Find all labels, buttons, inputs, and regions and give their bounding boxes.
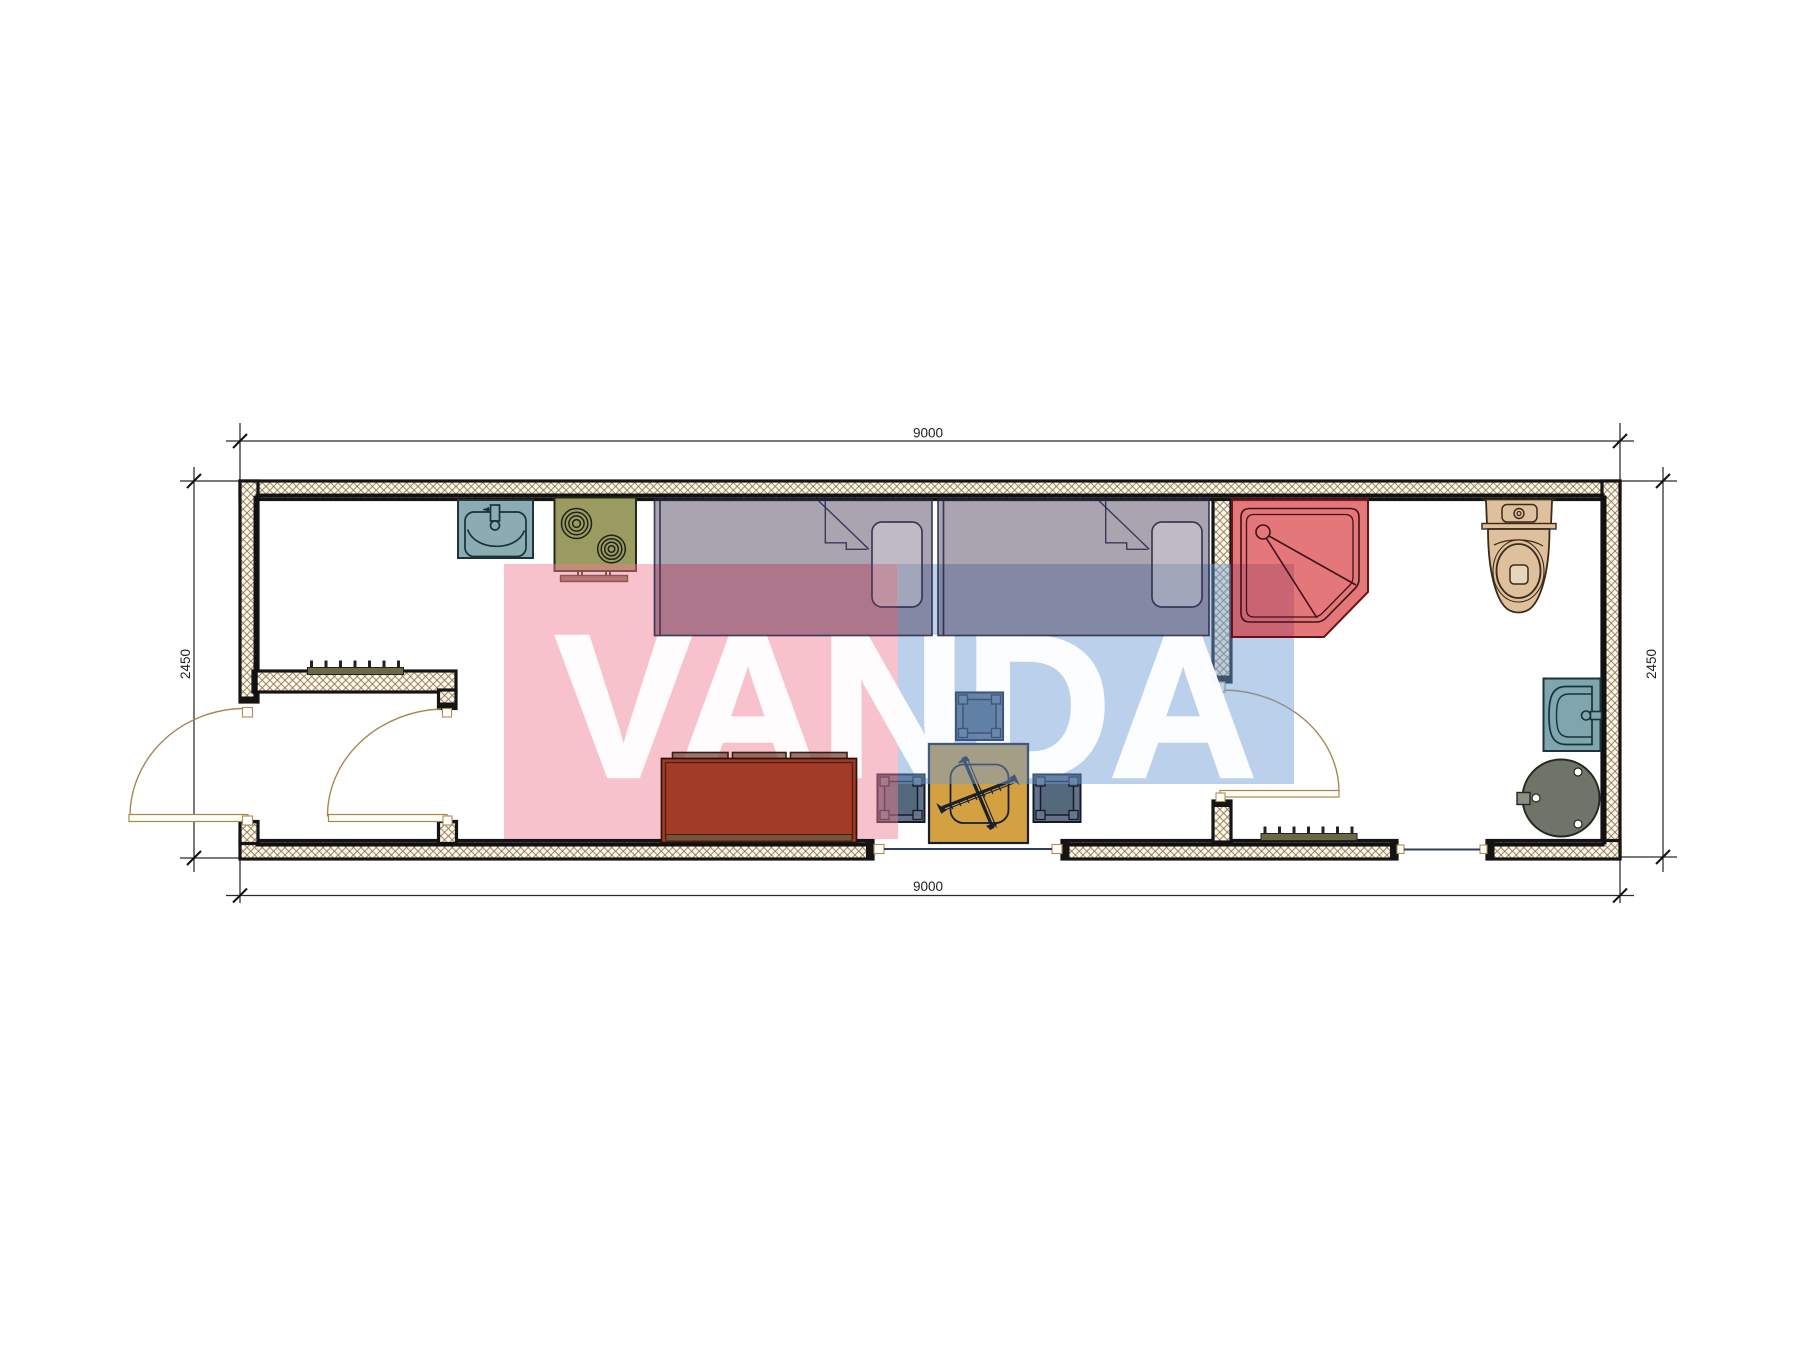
svg-text:2450: 2450	[1644, 649, 1659, 679]
svg-text:2450: 2450	[178, 649, 193, 679]
svg-text:9000: 9000	[913, 426, 943, 441]
svg-text:9000: 9000	[913, 879, 943, 894]
